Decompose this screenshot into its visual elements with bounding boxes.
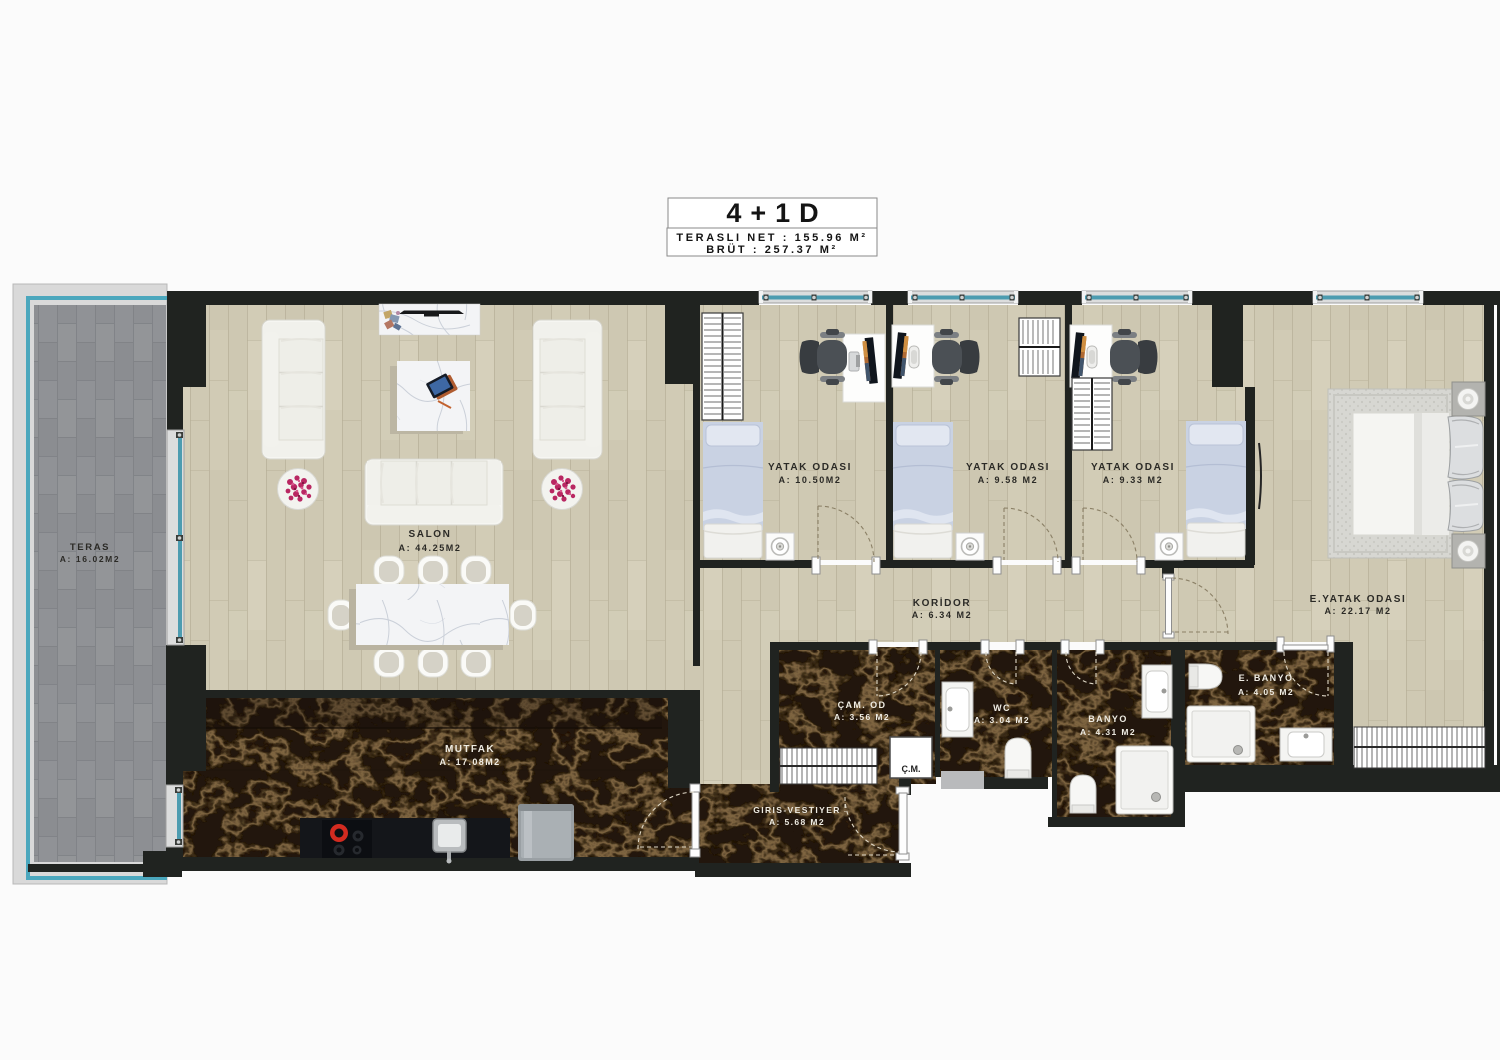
svg-text:A: 16.02M2: A: 16.02M2 — [60, 554, 120, 564]
svg-text:E.YATAK ODASI: E.YATAK ODASI — [1310, 594, 1407, 605]
svg-text:A: 5.68 M2: A: 5.68 M2 — [769, 817, 825, 827]
svg-text:A: 10.50M2: A: 10.50M2 — [778, 475, 841, 485]
svg-text:A: 6.34 M2: A: 6.34 M2 — [912, 610, 973, 620]
svg-text:A: 9.58 M2: A: 9.58 M2 — [978, 475, 1039, 485]
svg-text:A: 9.33 M2: A: 9.33 M2 — [1103, 475, 1164, 485]
svg-text:A: 4.31 M2: A: 4.31 M2 — [1080, 727, 1136, 737]
svg-text:BRÜT : 257.37 M²: BRÜT : 257.37 M² — [706, 243, 837, 256]
svg-text:E. BANYO: E. BANYO — [1239, 673, 1294, 683]
svg-text:YATAK ODASI: YATAK ODASI — [768, 462, 852, 473]
svg-text:A: 44.25M2: A: 44.25M2 — [398, 543, 461, 553]
svg-text:MUTFAK: MUTFAK — [445, 744, 495, 755]
svg-text:SALON: SALON — [409, 529, 452, 540]
svg-text:TERAS: TERAS — [70, 542, 110, 553]
svg-text:Ç.M.: Ç.M. — [902, 764, 921, 774]
svg-text:A: 4.05 M2: A: 4.05 M2 — [1238, 687, 1294, 697]
svg-text:A: 22.17 M2: A: 22.17 M2 — [1324, 606, 1391, 616]
svg-text:A: 3.04 M2: A: 3.04 M2 — [974, 715, 1030, 725]
svg-text:A: 17.08M2: A: 17.08M2 — [439, 757, 500, 767]
svg-text:BANYO: BANYO — [1088, 714, 1128, 724]
svg-text:YATAK ODASI: YATAK ODASI — [966, 462, 1050, 473]
svg-text:WC: WC — [993, 703, 1011, 713]
svg-text:KORİDOR: KORİDOR — [913, 596, 971, 609]
svg-text:4+1D: 4+1D — [726, 198, 827, 228]
svg-text:ÇAM. OD: ÇAM. OD — [838, 700, 887, 710]
svg-text:YATAK ODASI: YATAK ODASI — [1091, 462, 1175, 473]
svg-text:TERASLI NET : 155.96 M²: TERASLI NET : 155.96 M² — [676, 232, 867, 244]
svg-text:A: 3.56 M2: A: 3.56 M2 — [834, 712, 890, 722]
svg-text:GIRIS-VESTIYER: GIRIS-VESTIYER — [753, 805, 841, 815]
